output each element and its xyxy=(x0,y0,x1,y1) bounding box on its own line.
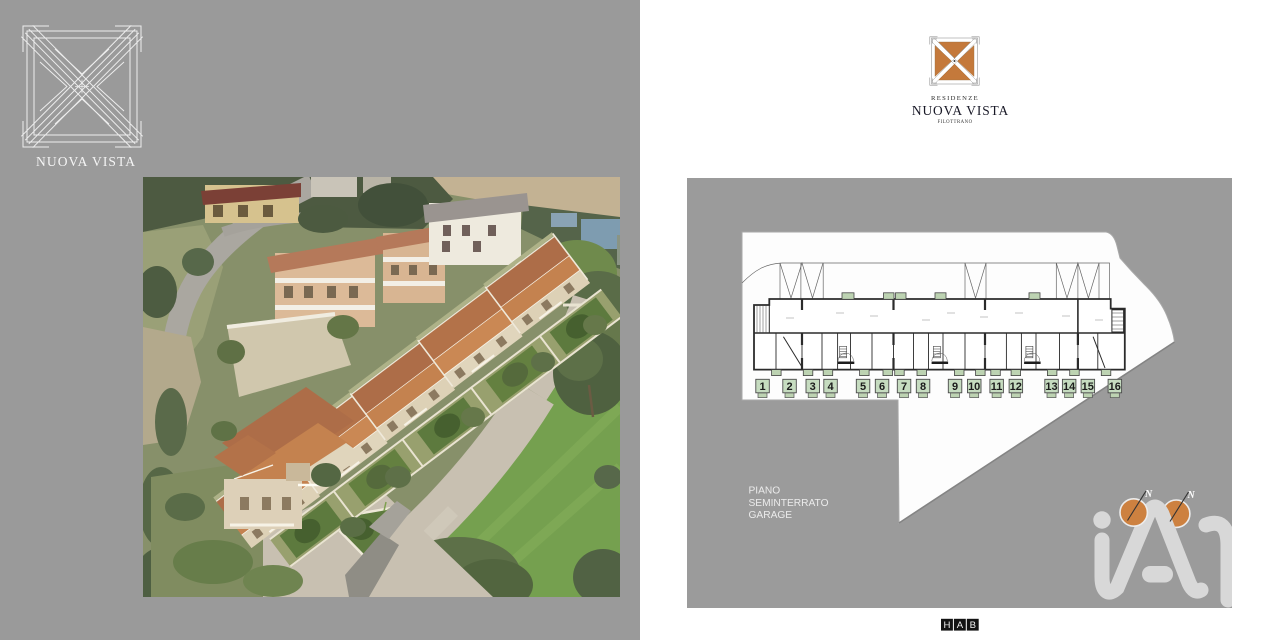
svg-text:4: 4 xyxy=(827,381,834,393)
svg-text:GARAGE: GARAGE xyxy=(749,510,793,521)
svg-text:B: B xyxy=(970,620,976,631)
svg-text:H: H xyxy=(944,620,951,631)
svg-text:9: 9 xyxy=(952,381,958,393)
svg-text:SEMINTERRATO: SEMINTERRATO xyxy=(749,498,829,509)
svg-text:10: 10 xyxy=(968,381,980,393)
svg-text:6: 6 xyxy=(879,381,885,393)
svg-text:13: 13 xyxy=(1045,381,1057,393)
svg-text:12: 12 xyxy=(1010,381,1022,393)
svg-text:A: A xyxy=(957,620,964,631)
svg-text:3: 3 xyxy=(810,381,816,393)
svg-text:N: N xyxy=(1144,489,1153,500)
svg-text:7: 7 xyxy=(901,381,907,393)
svg-text:PIANO: PIANO xyxy=(749,486,781,497)
svg-text:16: 16 xyxy=(1109,381,1121,393)
svg-text:1: 1 xyxy=(759,381,765,393)
svg-text:14: 14 xyxy=(1063,381,1076,393)
svg-text:N: N xyxy=(1187,490,1196,501)
svg-text:15: 15 xyxy=(1082,381,1094,393)
svg-text:5: 5 xyxy=(860,381,866,393)
svg-text:2: 2 xyxy=(786,381,792,393)
svg-text:8: 8 xyxy=(920,381,926,393)
svg-text:11: 11 xyxy=(991,381,1003,393)
